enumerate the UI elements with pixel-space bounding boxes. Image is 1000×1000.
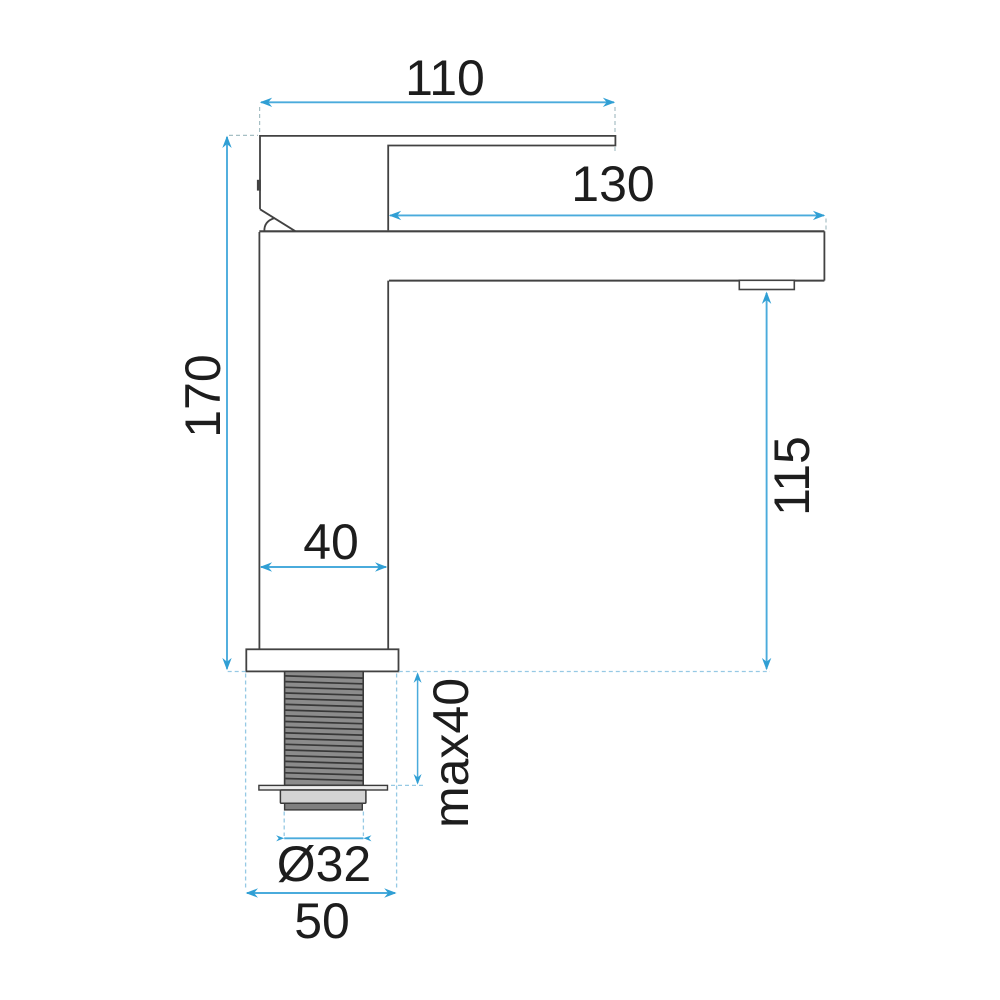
svg-text:170: 170 <box>175 354 231 437</box>
svg-text:40: 40 <box>303 514 359 570</box>
svg-text:110: 110 <box>405 50 485 106</box>
svg-text:Ø32: Ø32 <box>277 836 372 892</box>
svg-text:130: 130 <box>571 156 654 212</box>
svg-text:50: 50 <box>294 893 350 949</box>
svg-text:115: 115 <box>764 436 820 516</box>
svg-text:max40: max40 <box>423 678 479 828</box>
